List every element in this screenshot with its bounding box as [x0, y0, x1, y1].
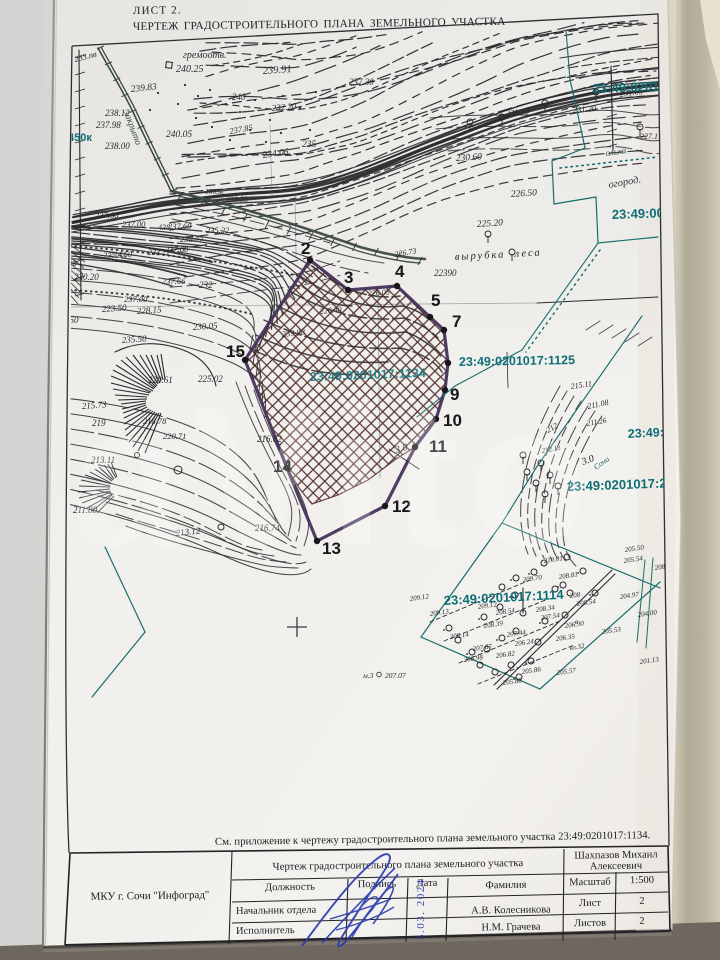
svg-text:МКУ г. Сочи "Инфоград": МКУ г. Сочи "Инфоград" [90, 889, 209, 903]
svg-text:230.60: 230.60 [456, 152, 483, 164]
svg-text:235.22: 235.22 [206, 225, 230, 235]
svg-text:230.05: 230.05 [192, 320, 218, 332]
svg-text:238.77: 238.77 [180, 234, 204, 244]
svg-text:23:49:0201: 23:49:0201 [593, 79, 660, 96]
svg-text:237.30: 237.30 [349, 77, 374, 87]
svg-text:3: 3 [344, 268, 353, 287]
svg-text:Лист: Лист [579, 898, 602, 909]
svg-text:237.00: 237.00 [124, 294, 148, 304]
svg-text:4: 4 [395, 262, 405, 281]
svg-text:м.3: м.3 [362, 671, 374, 680]
svg-text:237.00: 237.00 [122, 219, 146, 229]
svg-text:2: 2 [639, 896, 644, 907]
svg-text:240.05: 240.05 [166, 130, 192, 140]
svg-text:23:49:: 23:49: [627, 425, 664, 441]
svg-text:228.15: 228.15 [136, 304, 162, 316]
svg-text:гремоотв.: гремоотв. [183, 50, 227, 61]
svg-text:238.00: 238.00 [105, 141, 130, 151]
svg-text:А.В. Колесникова: А.В. Колесникова [471, 904, 551, 916]
svg-text:ЛИСТ 2.: ЛИСТ 2. [133, 4, 182, 17]
svg-text:Шахпазов Михаил: Шахпазов Михаил [574, 849, 657, 861]
svg-text:239.91: 239.91 [262, 64, 292, 77]
svg-text:7: 7 [452, 312, 461, 331]
svg-text:Фамилия: Фамилия [485, 880, 526, 892]
svg-text:208: 208 [654, 563, 666, 572]
svg-text:225.20: 225.20 [477, 218, 504, 230]
svg-text:240: 240 [232, 92, 246, 102]
svg-text:22390: 22390 [434, 268, 457, 278]
svg-text:Н.М. Грачева: Н.М. Грачева [481, 922, 541, 934]
svg-text:230.20: 230.20 [74, 272, 99, 282]
svg-text:aVito: aVito [72, 365, 597, 588]
svg-text:231.20: 231.20 [572, 103, 597, 115]
svg-text:235: 235 [302, 140, 317, 150]
svg-text:214.50: 214.50 [110, 250, 132, 259]
svg-text:207.07: 207.07 [385, 671, 406, 680]
svg-text:232: 232 [199, 280, 213, 290]
svg-text:5: 5 [431, 291, 440, 310]
svg-text:226.05: 226.05 [368, 287, 391, 298]
svg-text:226.50: 226.50 [511, 188, 538, 200]
svg-text:Исполнитель: Исполнитель [236, 925, 295, 937]
svg-text:235.50: 235.50 [121, 333, 147, 345]
svg-text:227.1: 227.1 [640, 132, 658, 141]
svg-text:223.50: 223.50 [101, 302, 127, 314]
svg-text:15: 15 [226, 342, 245, 361]
svg-text:Алексеевич: Алексеевич [590, 861, 643, 873]
svg-text:438: 438 [158, 223, 170, 232]
svg-text:1005в: 1005в [205, 187, 224, 196]
svg-text:240.25: 240.25 [176, 64, 204, 75]
svg-text:Начальник отдела: Начальник отдела [236, 905, 317, 917]
svg-text:237.98: 237.98 [96, 120, 121, 130]
svg-text:Масштаб: Масштаб [569, 877, 611, 889]
svg-text:239.33: 239.33 [226, 195, 248, 204]
svg-text:5.03. 2024: 5.03. 2024 [415, 878, 427, 940]
svg-text:237.66: 237.66 [162, 276, 186, 286]
svg-text:237.66: 237.66 [95, 210, 119, 220]
svg-text:1:500: 1:500 [630, 875, 654, 886]
svg-text:231.70: 231.70 [505, 106, 530, 118]
svg-text:2: 2 [639, 916, 644, 927]
svg-text:Должность: Должность [265, 882, 315, 894]
svg-text:233.71: 233.71 [148, 248, 170, 257]
svg-text:2: 2 [301, 239, 310, 258]
svg-text:237.60: 237.60 [168, 221, 192, 231]
svg-text:208: 208 [569, 591, 581, 600]
svg-text:23:49:00: 23:49:00 [612, 205, 665, 222]
svg-text:Листов: Листов [574, 918, 606, 930]
